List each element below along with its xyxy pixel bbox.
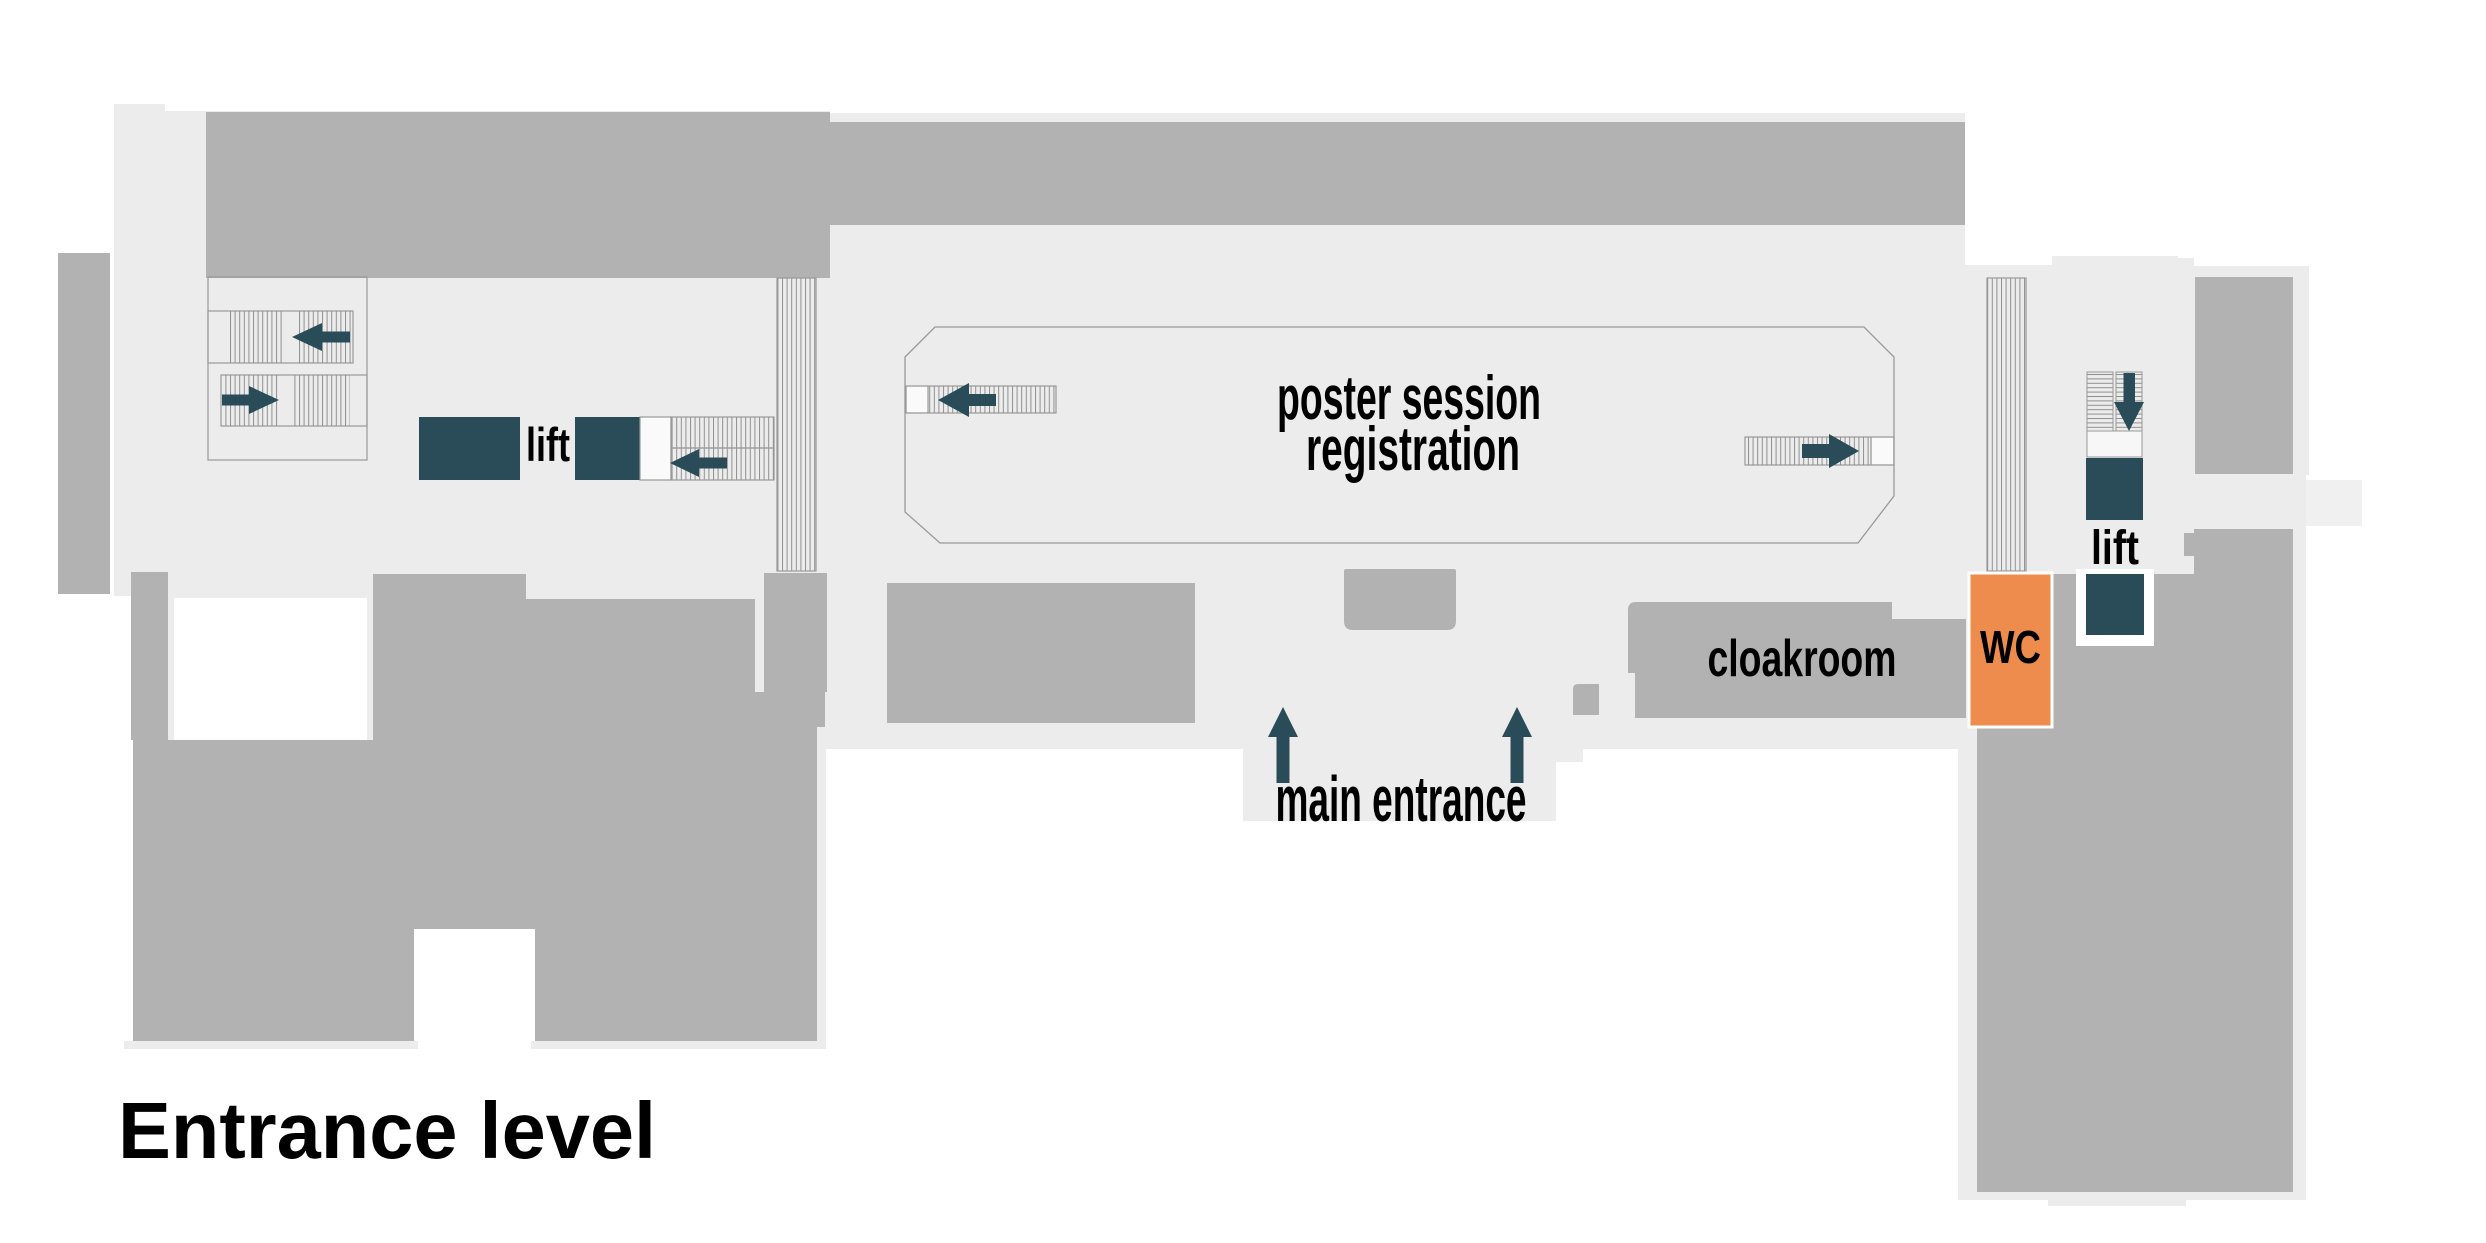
svg-text:lift: lift <box>526 418 570 471</box>
svg-text:registration: registration <box>1306 415 1520 484</box>
svg-text:Entrance level: Entrance level <box>118 1086 656 1175</box>
svg-text:main entrance: main entrance <box>1276 763 1527 835</box>
svg-text:WC: WC <box>1980 621 2041 673</box>
svg-text:cloakroom: cloakroom <box>1708 630 1897 688</box>
svg-text:lift: lift <box>2091 522 2139 575</box>
